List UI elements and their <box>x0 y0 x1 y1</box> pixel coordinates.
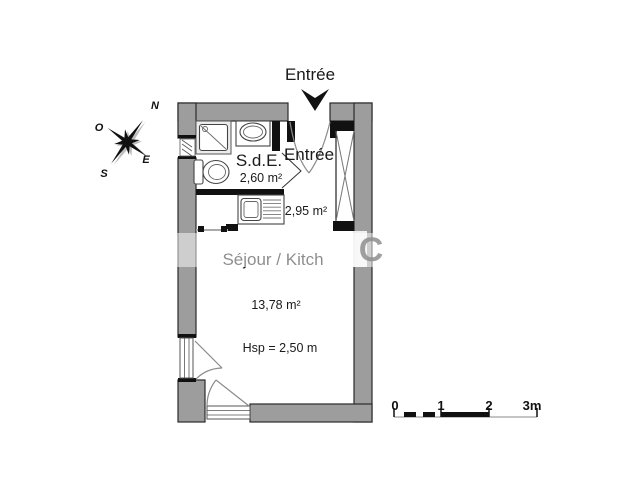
left-wall-vent <box>178 135 196 159</box>
watermark-letter: C <box>359 231 384 269</box>
closet-top-bar <box>333 121 354 131</box>
scale-tick-2: 2 <box>485 398 492 413</box>
partition-sde-south <box>196 189 284 195</box>
entrance-annotation: Entrée <box>285 65 335 111</box>
watermark-band <box>150 233 480 267</box>
floor-plan-page: S.d.E. 2,60 m² Entrée 2,95 m² Séjour / K… <box>0 0 640 480</box>
room-name-sde: S.d.E. <box>236 151 282 170</box>
wall-bottom-left-corner <box>178 380 205 422</box>
scale-tick-1: 1 <box>437 398 444 413</box>
toilet-icon <box>194 160 229 184</box>
compass-west-label: O <box>95 122 104 134</box>
zone-boundary <box>196 226 228 232</box>
watermark: C <box>150 231 480 269</box>
compass-north-label: N <box>151 100 160 112</box>
bottom-door <box>207 380 250 419</box>
closet-bottom-bar <box>333 221 354 231</box>
room-area-entree: 2,95 m² <box>285 204 327 218</box>
closet <box>333 121 354 231</box>
left-window <box>178 334 222 382</box>
entrance-label: Entrée <box>285 65 335 84</box>
scale-tick-3: 3m <box>523 398 542 413</box>
scale-bar: 0 1 2 3m <box>391 398 541 417</box>
washbasin-icon <box>236 121 270 146</box>
shower-icon <box>196 121 231 154</box>
window-swing-arc <box>196 368 222 379</box>
ceiling-height-note: Hsp = 2,50 m <box>243 341 318 355</box>
room-area-sde: 2,60 m² <box>240 171 282 185</box>
arrow-down-icon <box>301 89 329 111</box>
boundary-post <box>198 226 204 232</box>
scale-tick-0: 0 <box>391 398 398 413</box>
room-area-sejour: 13,78 m² <box>251 298 300 312</box>
wall-bottom-right <box>250 404 372 422</box>
wall-left-upper <box>178 103 196 138</box>
kitchen-sink-icon <box>226 195 284 231</box>
compass-rose-icon: N O E S <box>95 100 160 180</box>
room-name-entree: Entrée <box>284 145 334 164</box>
partition-sde-east <box>272 121 280 151</box>
compass-east-label: E <box>142 154 150 166</box>
compass-south-label: S <box>100 168 108 180</box>
boundary-post <box>221 226 227 232</box>
door-swing-arc <box>207 380 216 406</box>
floor-plan-drawing: S.d.E. 2,60 m² Entrée 2,95 m² Séjour / K… <box>0 0 640 480</box>
